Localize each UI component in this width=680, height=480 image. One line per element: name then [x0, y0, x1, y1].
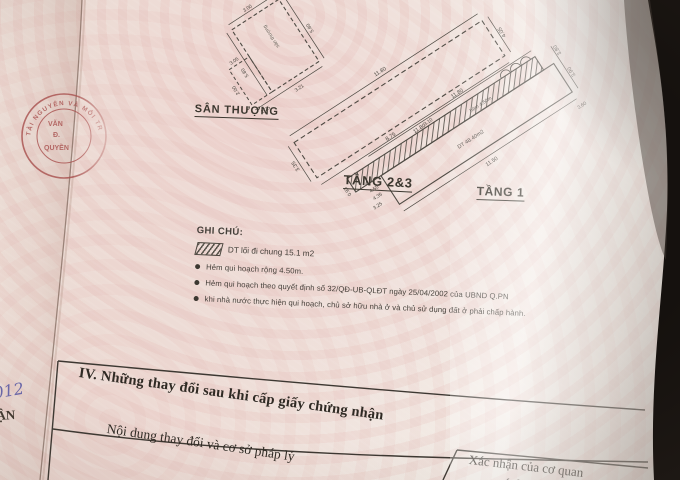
photo-of-certificate: TÀI NGUYÊN VÀ MÔI TR VĂN Đ. QUYỀN 5.80 5… — [0, 0, 680, 480]
photo-vignette — [0, 0, 680, 480]
